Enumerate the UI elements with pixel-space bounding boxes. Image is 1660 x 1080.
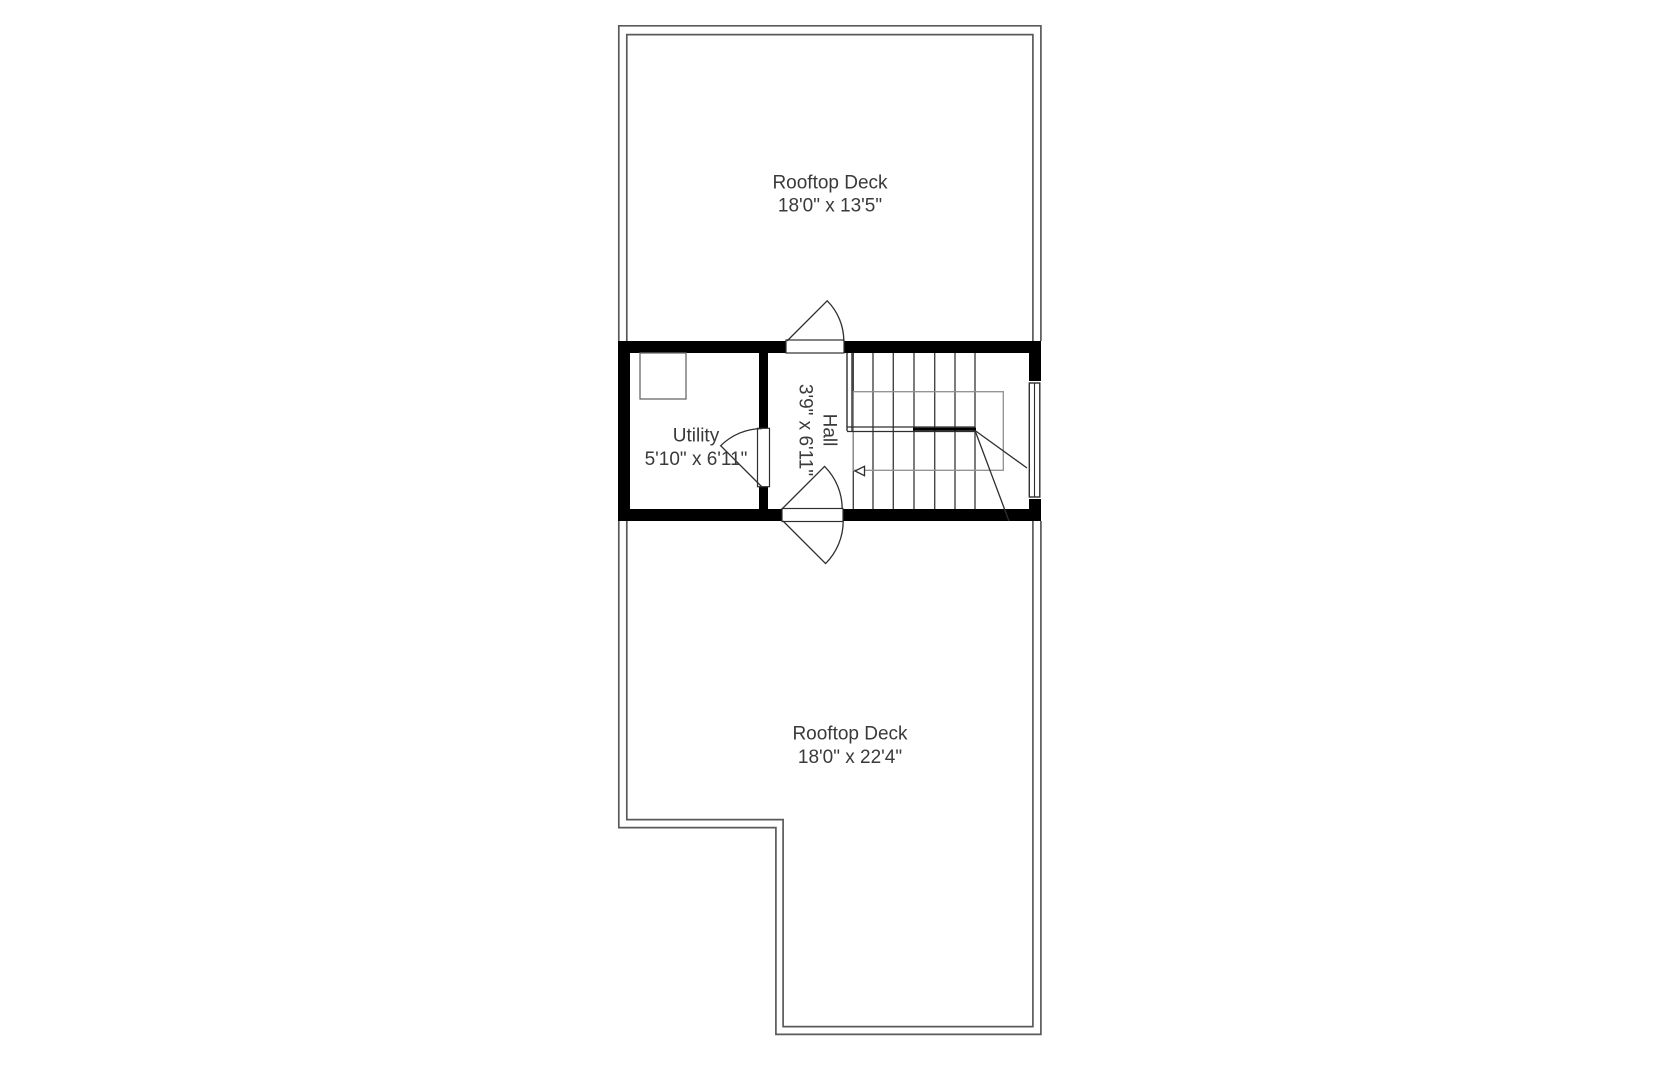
window [1028, 381, 1042, 499]
room-dimensions: 3'9" x 6'11" [795, 384, 816, 476]
door-bottom-threshold [782, 509, 843, 522]
wall-utility-hall-lower [759, 487, 768, 521]
door-top-threshold [786, 340, 844, 353]
room-dimensions: 18'0" x 22'4" [798, 747, 902, 768]
stair-winder-lines [975, 431, 1027, 522]
door-top-swing [787, 301, 844, 341]
label-deck-bottom: Rooftop Deck 18'0" x 22'4" [792, 724, 908, 769]
label-deck-top: Rooftop Deck 18'0" x 13'5" [772, 173, 888, 217]
room-name: Rooftop Deck [792, 724, 908, 745]
floor-plan-canvas: Rooftop Deck 18'0" x 13'5" Utility 5'10"… [0, 0, 1660, 1080]
wall-utility-hall-upper [759, 341, 768, 428]
room-dimensions: 18'0" x 13'5" [778, 196, 882, 217]
deck-bottom-boundary [619, 521, 1041, 1034]
utility-fixture [640, 353, 686, 399]
wall-left [618, 341, 630, 521]
room-name: Utility [673, 426, 720, 447]
label-utility: Utility 5'10" x 6'11" [645, 426, 748, 471]
wall-top-right [844, 341, 1041, 353]
stair-direction-arrow [855, 466, 865, 475]
door-bottom-swing-deck [783, 521, 843, 564]
room-dimensions: 5'10" x 6'11" [645, 449, 748, 470]
wall-bottom-right [843, 509, 1041, 521]
staircase [847, 353, 1027, 521]
wall-right-lower [1029, 497, 1041, 521]
wall-right-upper [1029, 341, 1041, 382]
floor-plan: Rooftop Deck 18'0" x 13'5" Utility 5'10"… [0, 0, 1660, 1080]
room-name: Hall [819, 414, 840, 447]
door-utility-threshold [758, 428, 770, 486]
label-hall: Hall 3'9" x 6'11" [795, 384, 840, 476]
room-name: Rooftop Deck [772, 173, 888, 194]
wall-bottom-left [618, 509, 782, 521]
